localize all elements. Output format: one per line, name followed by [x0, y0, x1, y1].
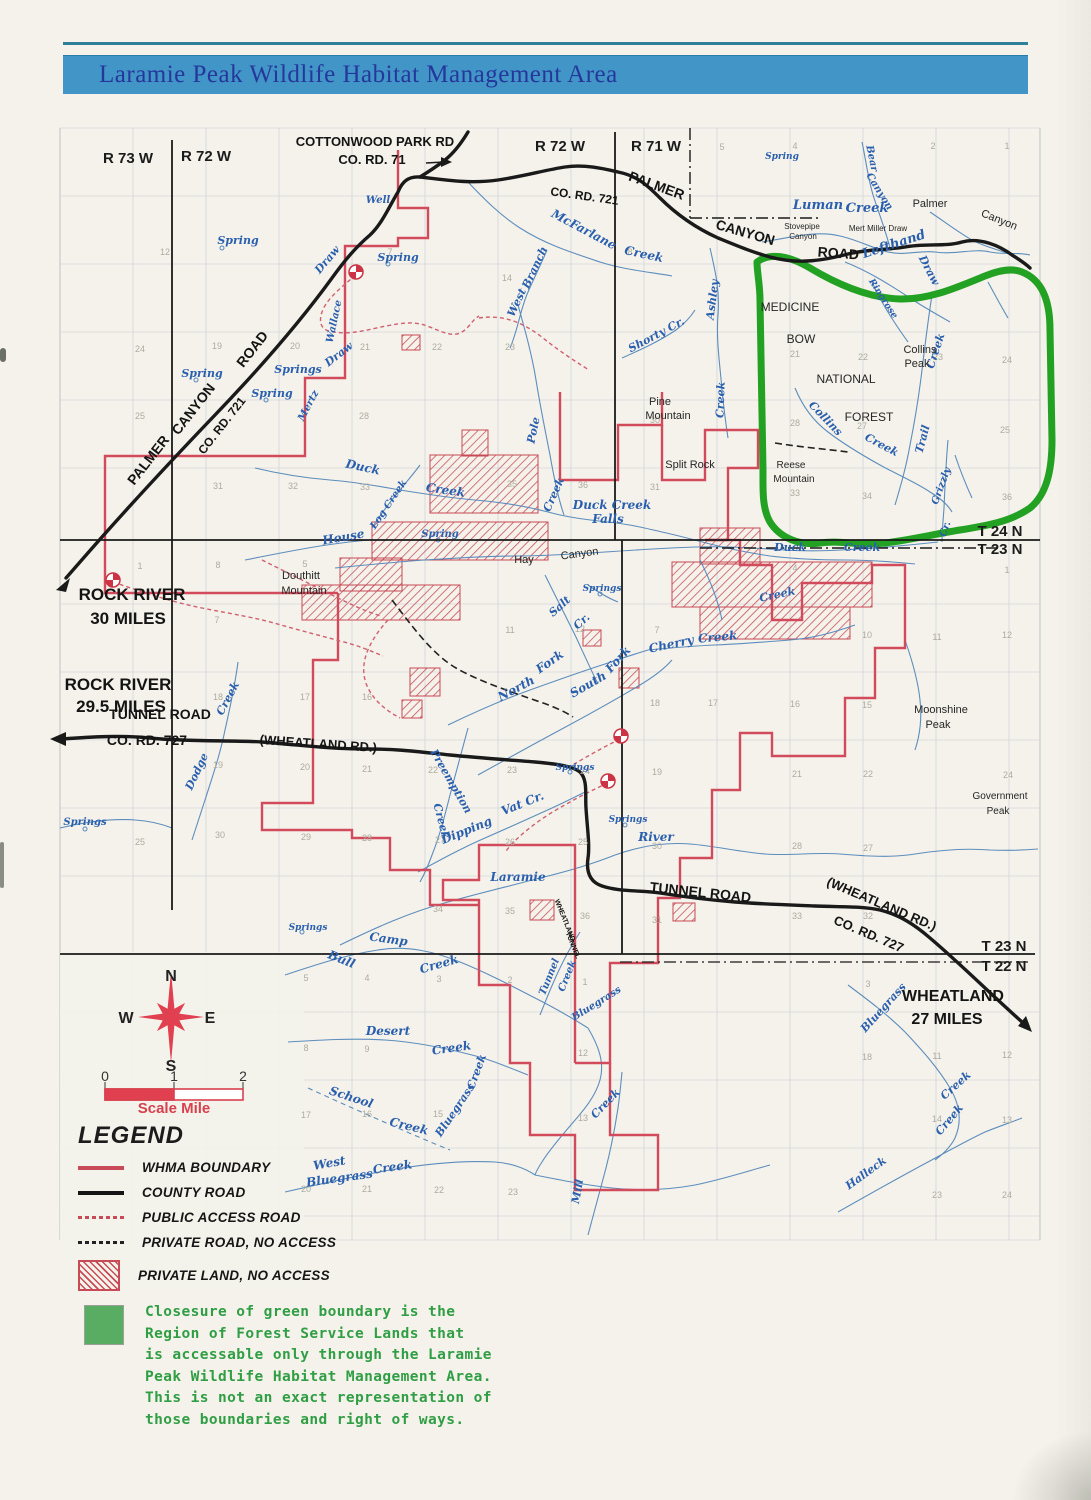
green-square-swatch	[84, 1305, 124, 1345]
scanned-map-page: Laramie Peak Wildlife Habitat Management…	[0, 0, 1091, 1500]
lbl-creek: Spring	[217, 234, 259, 247]
note-text: Closesure of green boundary is theRegion…	[145, 1302, 625, 1432]
lbl-road: CANYON	[714, 216, 777, 248]
legend-item-label: PUBLIC ACCESS ROAD	[142, 1210, 301, 1225]
spring-icon	[568, 770, 572, 774]
lbl-sec: 36	[580, 911, 590, 921]
lbl-sec: 34	[862, 491, 872, 501]
legend-swatch-red-dash	[78, 1216, 124, 1219]
lbl-place: NATIONAL	[816, 372, 875, 386]
lbl-sec: 21	[790, 349, 800, 359]
lbl-creek: Cherry	[647, 632, 695, 655]
legend-item-label: WHMA BOUNDARY	[142, 1160, 270, 1175]
spring-icon	[623, 823, 627, 827]
lbl-sec: 25	[135, 411, 145, 421]
note-line: Region of Forest Service Lands that	[145, 1324, 625, 1346]
lbl-sec: 18	[650, 698, 660, 708]
lbl-creek: South	[567, 669, 608, 701]
lbl-sec: 4	[364, 973, 369, 983]
note-line: is accessable only through the Laramie	[145, 1345, 625, 1367]
lbl-place: Government	[972, 791, 1027, 802]
lbl-sec: 7	[654, 625, 659, 635]
lbl-sec: 25	[578, 837, 588, 847]
lbl-range: T 23 N	[981, 938, 1026, 955]
lbl-road: 27 MILES	[911, 1011, 982, 1028]
lbl-sec: 5	[302, 559, 307, 569]
lbl-road: WHEATLAND	[553, 898, 576, 942]
lbl-creek: West	[505, 286, 529, 318]
lbl-sec: 24	[135, 344, 145, 354]
scan-shadow	[1011, 1430, 1091, 1500]
lbl-sec: 35	[505, 906, 515, 916]
lbl-sec: 8	[215, 560, 220, 570]
lbl-sec: 18	[213, 692, 223, 702]
lbl-creek: Spring	[181, 367, 223, 380]
lbl-sec: 29	[301, 832, 311, 842]
lbl-sec: 17	[708, 698, 718, 708]
lbl-creek: Duck Creek	[572, 498, 651, 512]
lbl-creek: Cr.	[571, 611, 593, 632]
legend-item: PUBLIC ACCESS ROAD	[78, 1210, 408, 1225]
legend-items: WHMA BOUNDARYCOUNTY ROADPUBLIC ACCESS RO…	[78, 1160, 408, 1291]
lbl-road: CANYON	[168, 380, 218, 438]
lbl-creek: Duck	[343, 456, 381, 477]
lbl-creek: McFarlane	[548, 206, 619, 252]
lbl-sec: 3	[436, 974, 441, 984]
lbl-creek: Canyon	[863, 171, 894, 212]
lbl-sec: 16	[362, 692, 372, 702]
legend-item-label: COUNTY ROAD	[142, 1185, 246, 1200]
lbl-sec: 11	[932, 632, 941, 642]
lbl-sec: 19	[652, 767, 662, 777]
note-line: Peak Wildlife Habitat Management Area.	[145, 1367, 625, 1389]
lbl-creek: Pole	[524, 416, 542, 446]
lbl-creek: Creek	[863, 431, 901, 460]
lbl-range: T 22 N	[981, 958, 1026, 975]
lbl-creek: Springs	[274, 363, 322, 376]
lbl-creek: Luman	[792, 198, 843, 213]
lbl-place: BOW	[787, 332, 816, 346]
lbl-sec: 15	[433, 1109, 443, 1119]
lbl-place: Palmer	[913, 198, 948, 210]
lbl-creek: Desert	[365, 1024, 411, 1038]
note-line: Closesure of green boundary is the	[145, 1302, 625, 1324]
legend-item: PRIVATE LAND, NO ACCESS	[78, 1260, 408, 1291]
lbl-creek: Creek	[464, 1052, 489, 1091]
lbl-place: Moonshine	[914, 704, 968, 716]
lbl-sec: 20	[300, 762, 310, 772]
lbl-sec: 17	[300, 692, 310, 702]
legend-item-label: PRIVATE LAND, NO ACCESS	[138, 1268, 330, 1283]
lbl-sec: 32	[288, 481, 298, 491]
lbl-sec: 2	[930, 141, 935, 151]
lbl-sec: 16	[790, 699, 800, 709]
legend-swatch-red-line	[78, 1166, 124, 1170]
legend-item: PRIVATE ROAD, NO ACCESS	[78, 1235, 408, 1250]
legend-item: WHMA BOUNDARY	[78, 1160, 408, 1175]
lbl-range: R 72 W	[181, 148, 232, 165]
lbl-creek: Creek	[933, 1101, 966, 1137]
lbl-sec: 1	[582, 977, 587, 987]
lbl-place: Canyon	[979, 208, 1019, 233]
lbl-sec: 5	[303, 973, 308, 983]
lbl-creek: Salt	[546, 593, 573, 619]
lbl-sec: 24	[1002, 1190, 1012, 1200]
spring-icon	[83, 827, 87, 831]
lbl-sec: 22	[432, 342, 442, 352]
legend-swatch-black-line	[78, 1191, 124, 1195]
lbl-place: Peak	[987, 806, 1011, 817]
lbl-sec: 21	[362, 764, 372, 774]
lbl-creek: Creek	[713, 381, 727, 418]
lbl-sec: 14	[932, 1114, 942, 1124]
lbl-sec: 3	[865, 979, 870, 989]
lbl-creek: Trail	[913, 424, 933, 455]
lbl-sec: 10	[862, 630, 872, 640]
lbl-road: CO. RD. 71	[338, 152, 405, 167]
lbl-sec: 36	[1002, 492, 1012, 502]
legend-swatch-red-hatch	[78, 1260, 120, 1291]
lbl-place: Mert Miller Draw	[849, 224, 907, 233]
lbl-sec: 30	[215, 830, 225, 840]
lbl-sec: 22	[434, 1185, 444, 1195]
lbl-sec: 27	[863, 843, 873, 853]
lbl-place: Reese	[777, 460, 806, 471]
lbl-sec: 12	[1002, 1050, 1012, 1060]
lbl-creek: Bluegrass	[432, 1081, 478, 1140]
lbl-sec: 20	[290, 341, 300, 351]
lbl-creek: Bluegrass	[569, 984, 623, 1024]
lbl-creek: Shorty Cr.	[626, 315, 687, 356]
lbl-creek: Fork	[532, 647, 566, 677]
lbl-place: Mountain	[645, 410, 690, 422]
lbl-sec: 8	[303, 1043, 308, 1053]
lbl-sec: 21	[360, 342, 370, 352]
lbl-sec: 8	[627, 247, 632, 257]
lbl-creek: Spring	[251, 387, 293, 400]
legend-panel: LEGEND WHMA BOUNDARYCOUNTY ROADPUBLIC AC…	[78, 1122, 408, 1301]
note-line: This is not an exact representation of	[145, 1388, 625, 1410]
lbl-sec: 22	[428, 765, 438, 775]
access-point-icon	[614, 729, 628, 743]
lbl-place: Collins	[903, 344, 937, 356]
lbl-sec: 31	[213, 481, 223, 491]
lbl-sec: 27	[857, 421, 867, 431]
lbl-creek: Creek	[214, 679, 243, 717]
lbl-road: ROCK RIVER	[79, 585, 186, 604]
lbl-sec: 4	[792, 141, 797, 151]
lbl-sec: 18	[862, 1052, 872, 1062]
lbl-sec: 21	[792, 769, 802, 779]
lbl-place: Stovepipe	[784, 222, 820, 231]
spring-icon	[194, 378, 198, 382]
lbl-sec: 28	[790, 418, 800, 428]
lbl-sec: 28	[792, 841, 802, 851]
lbl-sec: 2	[507, 975, 512, 985]
lbl-sec: 23	[932, 1190, 942, 1200]
lbl-creek: Well	[366, 195, 391, 206]
lbl-sec: 23	[933, 352, 943, 362]
lbl-sec: 11	[932, 1051, 941, 1061]
lbl-creek: Branch	[519, 244, 550, 291]
lbl-creek: River	[637, 830, 675, 844]
lbl-sec: 24	[1003, 770, 1013, 780]
lbl-road: ROCK RIVER	[65, 675, 172, 694]
lbl-creek: Dipping	[438, 814, 494, 847]
legend-item: COUNTY ROAD	[78, 1185, 408, 1200]
lbl-sec: 12	[1002, 630, 1012, 640]
lbl-sec: 9	[364, 1044, 369, 1054]
lbl-sec: 7	[387, 247, 392, 257]
lbl-creek: Draw	[915, 252, 942, 288]
spring-icon	[220, 246, 224, 250]
lbl-road: COTTONWOOD PARK RD	[296, 134, 454, 149]
lbl-place: Peak	[904, 358, 930, 370]
lbl-sec: 25	[135, 837, 145, 847]
note-line: those boundaries and right of ways.	[145, 1410, 625, 1432]
lbl-sec: 23	[508, 1187, 518, 1197]
lbl-creek: Creek	[938, 1068, 974, 1102]
lbl-range: T 23 N	[977, 541, 1022, 558]
lbl-sec: 15	[862, 700, 872, 710]
lbl-creek: Springs	[289, 923, 328, 933]
lbl-sec: 30	[652, 841, 662, 851]
lbl-creek: Springs	[609, 815, 648, 825]
lbl-creek: Spring	[377, 251, 419, 264]
lbl-creek: Bull	[325, 947, 358, 971]
lbl-sec: 1	[137, 561, 142, 571]
lbl-sec: 33	[790, 488, 800, 498]
lbl-sec: 22	[863, 769, 873, 779]
lbl-creek: Wallace	[325, 299, 345, 344]
lbl-range: R 72 W	[535, 138, 586, 155]
lbl-sec: 33	[792, 911, 802, 921]
lbl-sec: 12	[160, 247, 170, 257]
lbl-place: FOREST	[845, 410, 894, 424]
legend-swatch-black-dash	[78, 1241, 124, 1244]
lbl-road: (WHEATLAND RD.)	[825, 874, 939, 934]
lbl-sec: 30	[650, 415, 660, 425]
lbl-place: Mountain	[773, 474, 814, 485]
lbl-sec: 5	[719, 142, 724, 152]
lbl-sec: 25	[1000, 425, 1010, 435]
lbl-sec: 32	[863, 911, 873, 921]
lbl-creek: School	[328, 1084, 376, 1111]
lbl-creek: Mertz	[296, 388, 322, 423]
lbl-range: R 71 W	[631, 138, 682, 155]
spring-icon	[300, 930, 304, 934]
lbl-sec: 28	[359, 411, 369, 421]
lbl-road: PALMER	[124, 432, 172, 488]
lbl-road: 30 MILES	[90, 609, 166, 628]
lbl-sec: 12	[578, 1048, 588, 1058]
lbl-place: Pine	[649, 396, 671, 408]
lbl-road: CO. RD. 727	[832, 912, 906, 955]
lbl-sec: 19	[212, 341, 222, 351]
lbl-place: Split Rock	[665, 459, 715, 471]
lbl-road: 29.5 MILES	[76, 697, 166, 716]
lbl-road: PALMER	[627, 168, 687, 203]
lbl-creek: Draw	[321, 339, 355, 370]
lbl-sec: 24	[1002, 355, 1012, 365]
access-point-icon	[106, 573, 120, 587]
lbl-creek: Dodge	[182, 751, 211, 793]
lbl-creek: Spring	[765, 152, 799, 162]
lbl-creek: Collins	[806, 399, 845, 439]
legend-title: LEGEND	[78, 1122, 408, 1150]
legend-item-label: PRIVATE ROAD, NO ACCESS	[142, 1235, 336, 1250]
lbl-range: R 73 W	[103, 150, 154, 167]
lbl-sec: 7	[214, 615, 219, 625]
lbl-sec: 23	[507, 765, 517, 775]
lbl-sec: 11	[505, 625, 514, 635]
lbl-creek: Camp	[369, 929, 410, 948]
lbl-sec: 14	[502, 273, 512, 283]
lbl-creek: Creek	[588, 1086, 623, 1121]
lbl-place: Peak	[925, 719, 951, 731]
lbl-creek: Creek	[846, 201, 889, 216]
access-point-icon	[601, 774, 615, 788]
lbl-road: ROAD	[233, 328, 271, 370]
lbl-creek: Creek	[431, 1038, 472, 1057]
lbl-creek: Bluegrass	[857, 980, 908, 1035]
lbl-creek: Creek	[418, 952, 460, 976]
lbl-sec: 36	[578, 480, 588, 490]
lbl-road: TUNNEL ROAD	[109, 706, 211, 722]
lbl-sec: 31	[650, 482, 660, 492]
access-point-icon	[349, 265, 363, 279]
